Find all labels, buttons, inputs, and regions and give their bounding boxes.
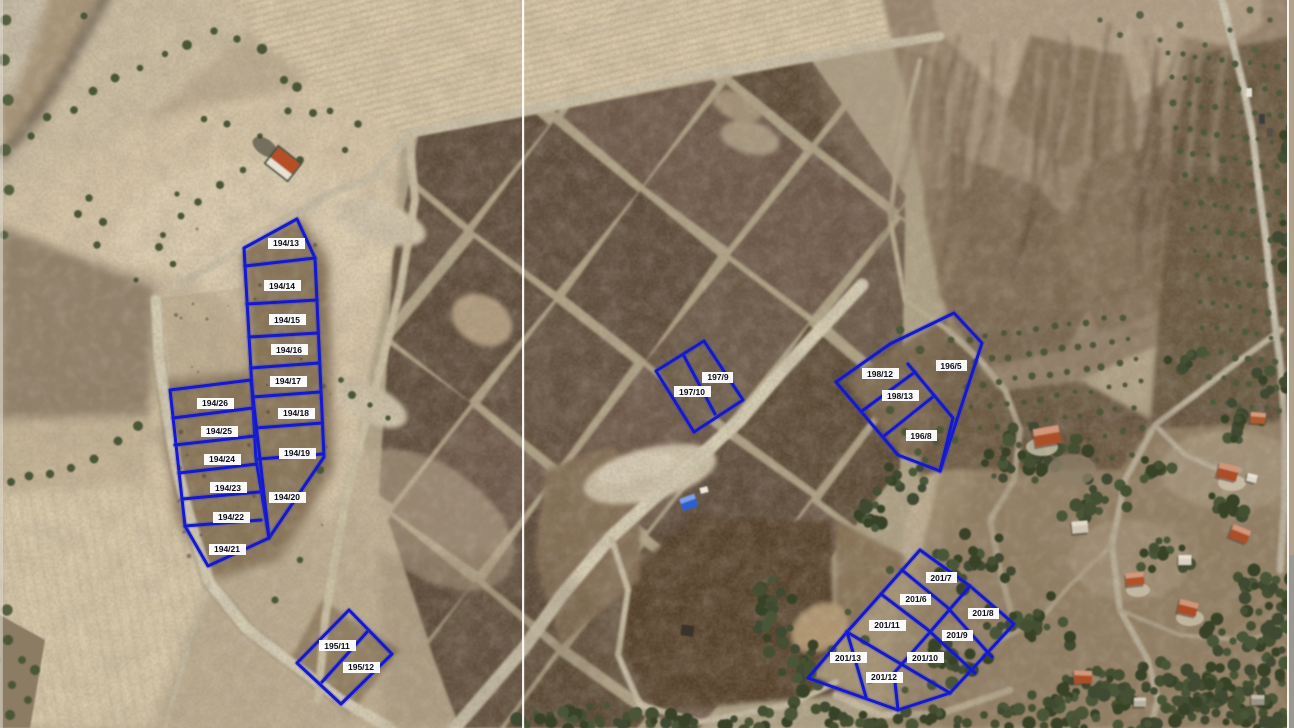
svg-text:196/8: 196/8 bbox=[910, 431, 932, 441]
svg-text:194/22: 194/22 bbox=[218, 512, 244, 522]
svg-text:201/10: 201/10 bbox=[912, 653, 938, 663]
svg-text:198/12: 198/12 bbox=[867, 369, 893, 379]
svg-text:195/11: 195/11 bbox=[324, 641, 350, 651]
svg-text:194/16: 194/16 bbox=[276, 345, 302, 355]
svg-text:194/26: 194/26 bbox=[202, 398, 228, 408]
svg-text:194/24: 194/24 bbox=[209, 454, 235, 464]
svg-text:194/18: 194/18 bbox=[283, 408, 309, 418]
svg-text:194/23: 194/23 bbox=[215, 483, 241, 493]
svg-text:196/5: 196/5 bbox=[940, 361, 962, 371]
svg-text:194/25: 194/25 bbox=[206, 426, 232, 436]
svg-text:197/10: 197/10 bbox=[679, 387, 705, 397]
svg-text:194/19: 194/19 bbox=[284, 448, 310, 458]
svg-text:201/8: 201/8 bbox=[972, 608, 994, 618]
svg-text:201/7: 201/7 bbox=[930, 573, 952, 583]
svg-text:201/9: 201/9 bbox=[946, 630, 968, 640]
svg-text:201/6: 201/6 bbox=[905, 594, 927, 604]
svg-text:201/13: 201/13 bbox=[835, 653, 861, 663]
svg-text:197/9: 197/9 bbox=[707, 372, 729, 382]
svg-text:194/21: 194/21 bbox=[214, 544, 240, 554]
svg-text:194/17: 194/17 bbox=[275, 376, 301, 386]
svg-text:194/13: 194/13 bbox=[273, 238, 299, 248]
svg-text:201/12: 201/12 bbox=[871, 672, 897, 682]
svg-text:195/12: 195/12 bbox=[348, 662, 374, 672]
svg-text:198/13: 198/13 bbox=[887, 391, 913, 401]
svg-text:194/14: 194/14 bbox=[269, 281, 295, 291]
svg-text:201/11: 201/11 bbox=[874, 620, 900, 630]
svg-text:194/15: 194/15 bbox=[274, 315, 300, 325]
svg-text:194/20: 194/20 bbox=[274, 492, 300, 502]
